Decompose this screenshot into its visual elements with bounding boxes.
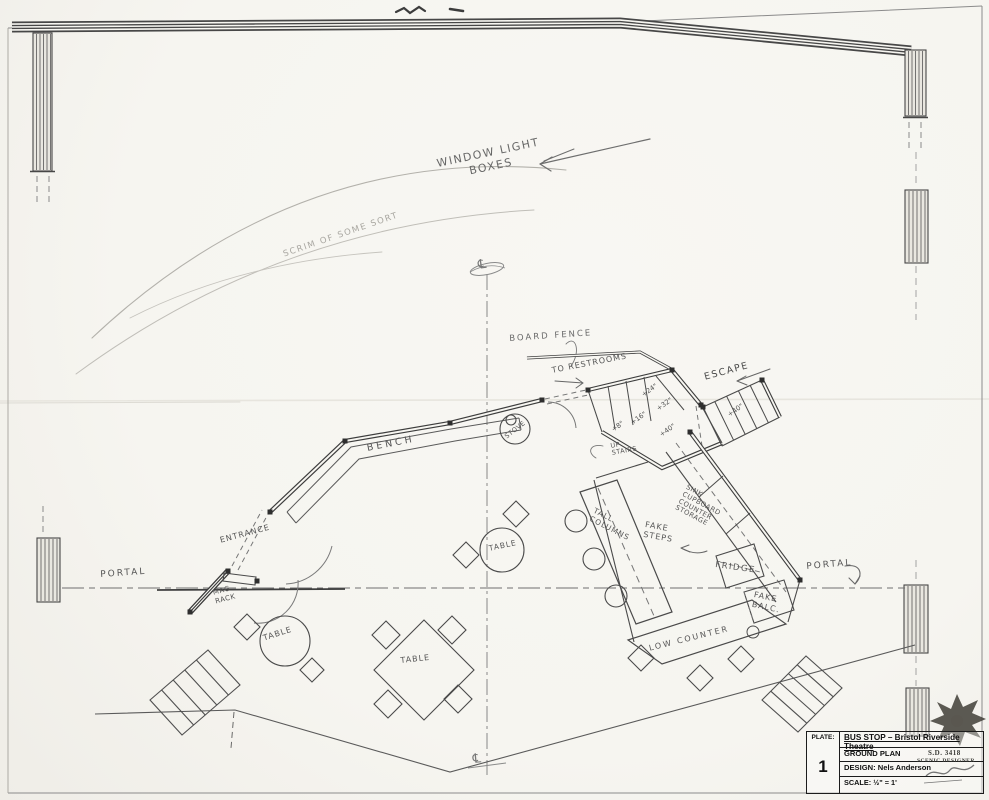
masking-leg-top-right (903, 50, 928, 150)
plate-number: 1 (818, 741, 827, 793)
scale-note: SCALE: ½" = 1' (840, 777, 983, 789)
door-swing-arc-upper (286, 546, 332, 584)
stair-unit-bottom-right (762, 656, 842, 732)
escape-stairs (703, 380, 780, 446)
designer-credit: DESIGN: Nels Anderson (840, 762, 983, 777)
up-stairs-tail (591, 445, 603, 458)
tall-counter (580, 480, 672, 624)
paper-artifacts (0, 7, 989, 403)
stamp-number: S.D. 3418 (928, 749, 961, 757)
wall-posts (188, 368, 803, 615)
plate-label: PLATE: (812, 732, 835, 741)
masking-leg-right-mid (905, 190, 928, 263)
masking-leg-left-mid (37, 506, 60, 602)
bench-seat (287, 418, 521, 523)
chairs (234, 501, 754, 718)
stair-unit-bottom-left (150, 650, 240, 735)
theatre-walls (12, 23, 929, 736)
show-title: BUS STOP – Bristol Riverside Theatre (840, 732, 983, 748)
square-table (374, 620, 474, 720)
restroom-corridor (545, 390, 588, 428)
centerline-symbol-bottom: ℄ (472, 751, 482, 768)
masking-leg-right-bottom (906, 688, 929, 736)
title-block-plate-column: PLATE: 1 (807, 732, 840, 793)
kitchen-unit (580, 432, 800, 664)
plan-linework (0, 0, 989, 800)
masking-leg-top-left (30, 33, 55, 206)
stamp-title: SCENIC DESIGNER (917, 758, 975, 764)
ground-plan-scan: WINDOW LIGHT BOXES SCRIM OF SOME SORT BO… (0, 0, 989, 800)
fake-steps-arrow (681, 545, 707, 553)
restrooms-arrow (555, 378, 583, 388)
window-light-arrow (540, 139, 650, 171)
stage-edge (95, 645, 915, 772)
masking-leg-right-lower (904, 585, 928, 653)
